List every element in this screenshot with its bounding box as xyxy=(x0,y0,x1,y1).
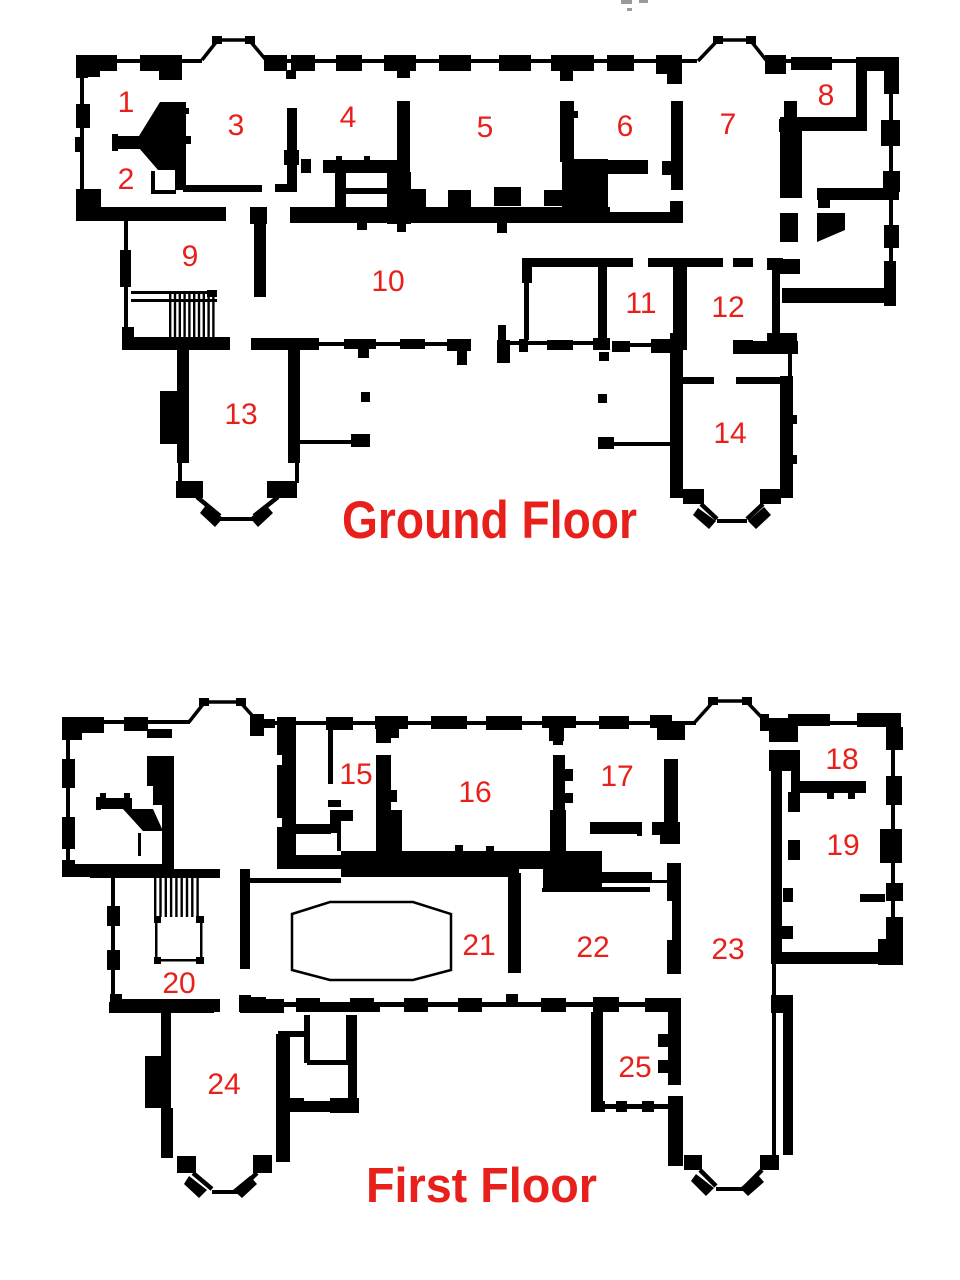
svg-text:18: 18 xyxy=(825,743,858,776)
svg-text:23: 23 xyxy=(711,933,744,966)
svg-text:2: 2 xyxy=(118,163,135,196)
svg-text:17: 17 xyxy=(600,760,633,793)
svg-text:13: 13 xyxy=(224,398,257,431)
svg-text:15: 15 xyxy=(339,758,372,791)
svg-text:12: 12 xyxy=(711,291,744,324)
svg-text:20: 20 xyxy=(162,967,195,1000)
svg-text:11: 11 xyxy=(625,287,656,320)
svg-text:First Floor: First Floor xyxy=(366,1159,597,1213)
svg-text:5: 5 xyxy=(477,111,494,144)
svg-text:3: 3 xyxy=(228,109,245,142)
svg-text:14: 14 xyxy=(713,417,746,450)
svg-text:1: 1 xyxy=(118,86,135,119)
svg-text:Ground Floor: Ground Floor xyxy=(342,491,637,550)
svg-text:22: 22 xyxy=(576,931,609,964)
svg-text:21: 21 xyxy=(462,929,495,962)
svg-text:16: 16 xyxy=(458,776,491,809)
svg-text:6: 6 xyxy=(617,110,634,143)
svg-text:24: 24 xyxy=(207,1068,240,1101)
svg-text:19: 19 xyxy=(826,829,859,862)
svg-text:25: 25 xyxy=(618,1051,651,1084)
svg-text:8: 8 xyxy=(818,79,835,112)
svg-text:7: 7 xyxy=(720,108,737,141)
svg-text:10: 10 xyxy=(371,265,404,298)
svg-text:4: 4 xyxy=(340,101,357,134)
svg-text:9: 9 xyxy=(182,240,199,273)
